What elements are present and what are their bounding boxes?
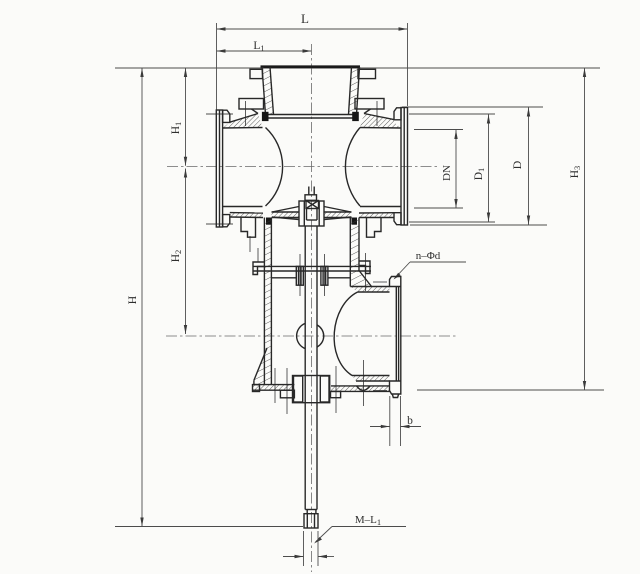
svg-text:n–Φd: n–Φd	[416, 250, 441, 262]
svg-text:H1: H1	[170, 122, 183, 135]
svg-text:H2: H2	[170, 250, 183, 263]
svg-text:D1: D1	[473, 168, 486, 181]
svg-text:b: b	[407, 415, 413, 427]
svg-text:L1: L1	[253, 40, 264, 53]
svg-text:D: D	[510, 160, 524, 169]
svg-text:H3: H3	[569, 166, 582, 179]
svg-text:H: H	[125, 295, 139, 304]
svg-text:L: L	[301, 11, 309, 26]
svg-text:M–L1: M–L1	[355, 514, 381, 527]
svg-text:DN: DN	[441, 165, 453, 181]
